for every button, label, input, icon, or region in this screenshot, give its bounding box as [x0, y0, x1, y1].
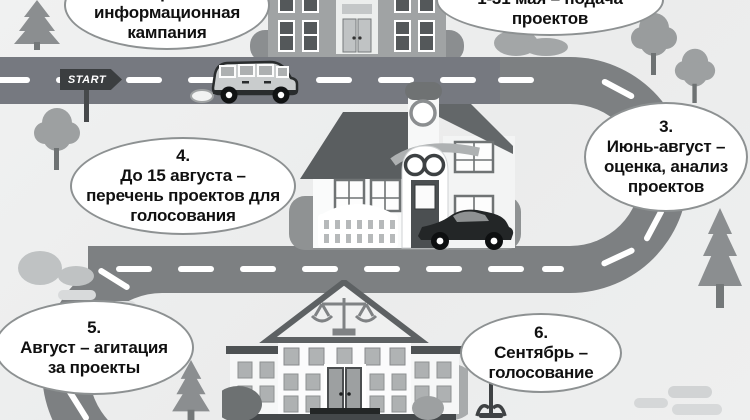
- step-1-bubble: 1. Апрель – информационная кампания: [64, 0, 270, 50]
- step-5-number: 5.: [87, 318, 101, 338]
- pine-tree-icon: [696, 208, 744, 308]
- lane-dash: [302, 266, 338, 272]
- step-5-line: за проекты: [48, 358, 140, 378]
- start-sign: START: [60, 69, 122, 90]
- roadmap-infographic: START: [0, 0, 750, 420]
- step-5-bubble: 5. Август – агитация за проекты: [0, 300, 194, 395]
- lane-dash: [0, 77, 30, 83]
- black-sedan: [413, 200, 515, 252]
- lane-dash: [542, 266, 564, 272]
- bush: [412, 396, 444, 420]
- left-roof: [300, 112, 409, 179]
- courthouse-building: [222, 280, 468, 420]
- deciduous-tree-icon: [33, 106, 81, 170]
- step-2-clipped-line: 1-31 мая – подача: [477, 0, 623, 9]
- cloud-strip: [634, 398, 668, 408]
- step-4-bubble: 4. До 15 августа – перечень проектов для…: [70, 137, 296, 235]
- step-6-line: Сентябрь –: [494, 343, 588, 363]
- step-3-line: оценка, анализ: [604, 157, 728, 177]
- picket-fence: [318, 204, 398, 248]
- lane-dash: [364, 266, 400, 272]
- townhall-door: [336, 0, 378, 54]
- step-4-line: До 15 августа –: [120, 166, 246, 186]
- step-5-line: Август – агитация: [20, 338, 168, 358]
- step-4-number: 4.: [176, 146, 190, 166]
- cloud-icon: [10, 242, 114, 286]
- step-3-bubble: 3. Июнь-август – оценка, анализ проектов: [584, 102, 748, 212]
- lane-dash: [426, 266, 462, 272]
- townhall-building: [250, 0, 464, 62]
- round-window: [411, 101, 435, 125]
- step-1-line: информационная: [94, 3, 240, 23]
- step-4-line: перечень проектов для: [86, 186, 280, 206]
- cloud-strip: [668, 386, 712, 398]
- step-1-line: кампания: [127, 23, 206, 43]
- exhaust-puff: [191, 90, 213, 102]
- lane-dash: [488, 266, 524, 272]
- lane-dash: [126, 77, 162, 83]
- step-4-line: голосования: [130, 206, 236, 226]
- step-3-number: 3.: [659, 117, 673, 137]
- step-3-line: проектов: [628, 177, 704, 197]
- step-3-line: Июнь-август –: [607, 137, 726, 157]
- deciduous-tree-icon: [674, 46, 716, 104]
- step-6-bubble: 6. Сентябрь – голосование: [460, 313, 622, 393]
- cloud-strip: [672, 404, 722, 415]
- start-sign-label: START: [68, 74, 106, 86]
- porch-round-window: [425, 156, 444, 175]
- lane-dash: [240, 266, 276, 272]
- pine-tree-icon: [14, 0, 60, 50]
- start-sign-post: [84, 86, 89, 122]
- minivan: [190, 56, 308, 104]
- step-2-line: проектов: [512, 9, 588, 29]
- cloud-strip: [58, 290, 96, 300]
- porch-round-window: [406, 156, 425, 175]
- step-6-line: голосование: [488, 363, 593, 383]
- lane-dash: [178, 266, 214, 272]
- step-6-number: 6.: [534, 323, 548, 343]
- lane-dash: [116, 266, 152, 272]
